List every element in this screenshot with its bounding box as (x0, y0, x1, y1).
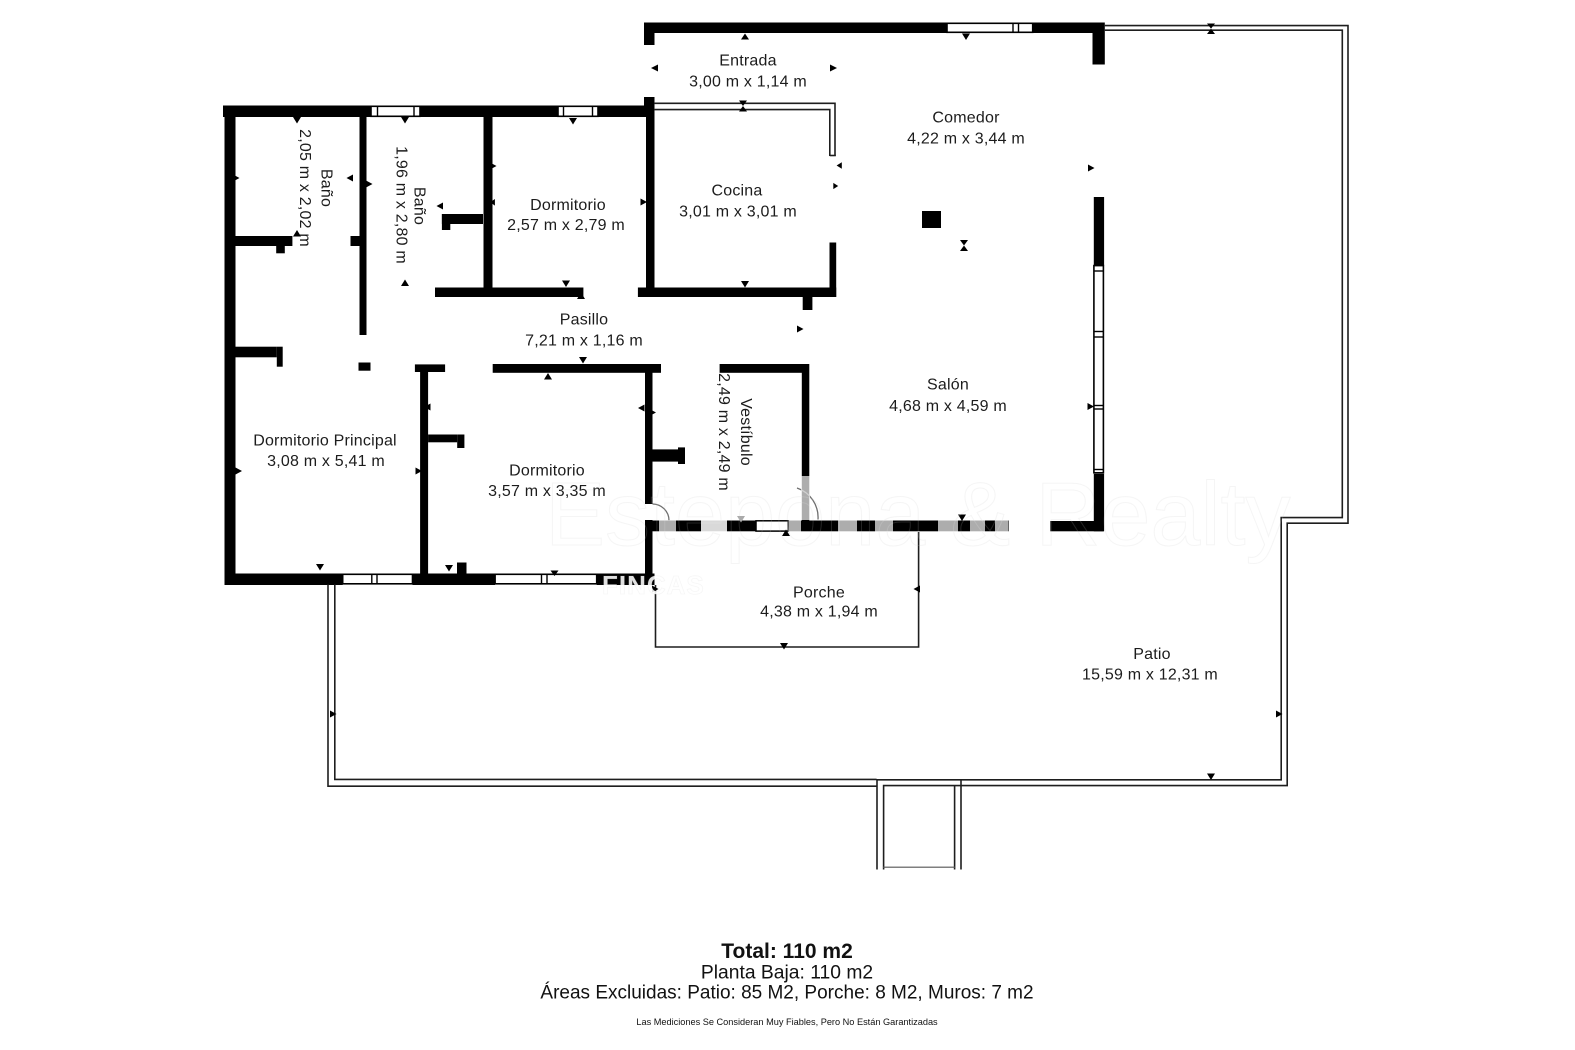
svg-text:Estepona & Realty: Estepona & Realty (545, 465, 1290, 565)
svg-text:4,22 m x 3,44 m: 4,22 m x 3,44 m (907, 131, 1025, 148)
svg-text:Total: 110 m2: Total: 110 m2 (721, 940, 853, 963)
svg-text:Dormitorio: Dormitorio (530, 197, 606, 214)
svg-text:2,05 m x 2,02 m: 2,05 m x 2,02 m (296, 129, 313, 247)
svg-text:4,38 m x 1,94 m: 4,38 m x 1,94 m (760, 604, 878, 621)
svg-text:Porche: Porche (793, 585, 845, 602)
svg-text:Baño: Baño (318, 169, 335, 207)
svg-text:4,68 m x 4,59 m: 4,68 m x 4,59 m (889, 398, 1007, 415)
svg-text:Planta Baja: 110 m2: Planta Baja: 110 m2 (701, 963, 873, 984)
svg-text:Entrada: Entrada (719, 53, 776, 70)
svg-text:7,21 m x 1,16 m: 7,21 m x 1,16 m (525, 333, 643, 350)
svg-text:3,01 m x 3,01 m: 3,01 m x 3,01 m (679, 204, 797, 221)
svg-text:Vestíbulo: Vestíbulo (737, 398, 754, 466)
svg-text:15,59 m x 12,31 m: 15,59 m x 12,31 m (1082, 667, 1218, 684)
svg-text:Las Mediciones Se Consideran M: Las Mediciones Se Consideran Muy Fiables… (636, 1017, 938, 1027)
svg-text:Cocina: Cocina (711, 183, 762, 200)
svg-text:Salón: Salón (927, 377, 969, 394)
svg-text:Comedor: Comedor (932, 110, 1000, 127)
svg-text:Baño: Baño (411, 187, 428, 225)
svg-text:1,96 m x 2,80 m: 1,96 m x 2,80 m (393, 146, 410, 264)
svg-text:3,00 m x 1,14 m: 3,00 m x 1,14 m (689, 74, 807, 91)
svg-text:2,57 m x 2,79 m: 2,57 m x 2,79 m (507, 217, 625, 234)
svg-text:Áreas Excluidas: Patio: 85 M2,: Áreas Excluidas: Patio: 85 M2, Porche: 8… (540, 983, 1033, 1004)
svg-text:FINCAS: FINCAS (602, 570, 705, 600)
svg-text:Patio: Patio (1133, 646, 1170, 663)
svg-text:3,08 m x 5,41 m: 3,08 m x 5,41 m (267, 453, 385, 470)
svg-text:Dormitorio Principal: Dormitorio Principal (253, 433, 397, 450)
svg-text:Pasillo: Pasillo (560, 312, 609, 329)
